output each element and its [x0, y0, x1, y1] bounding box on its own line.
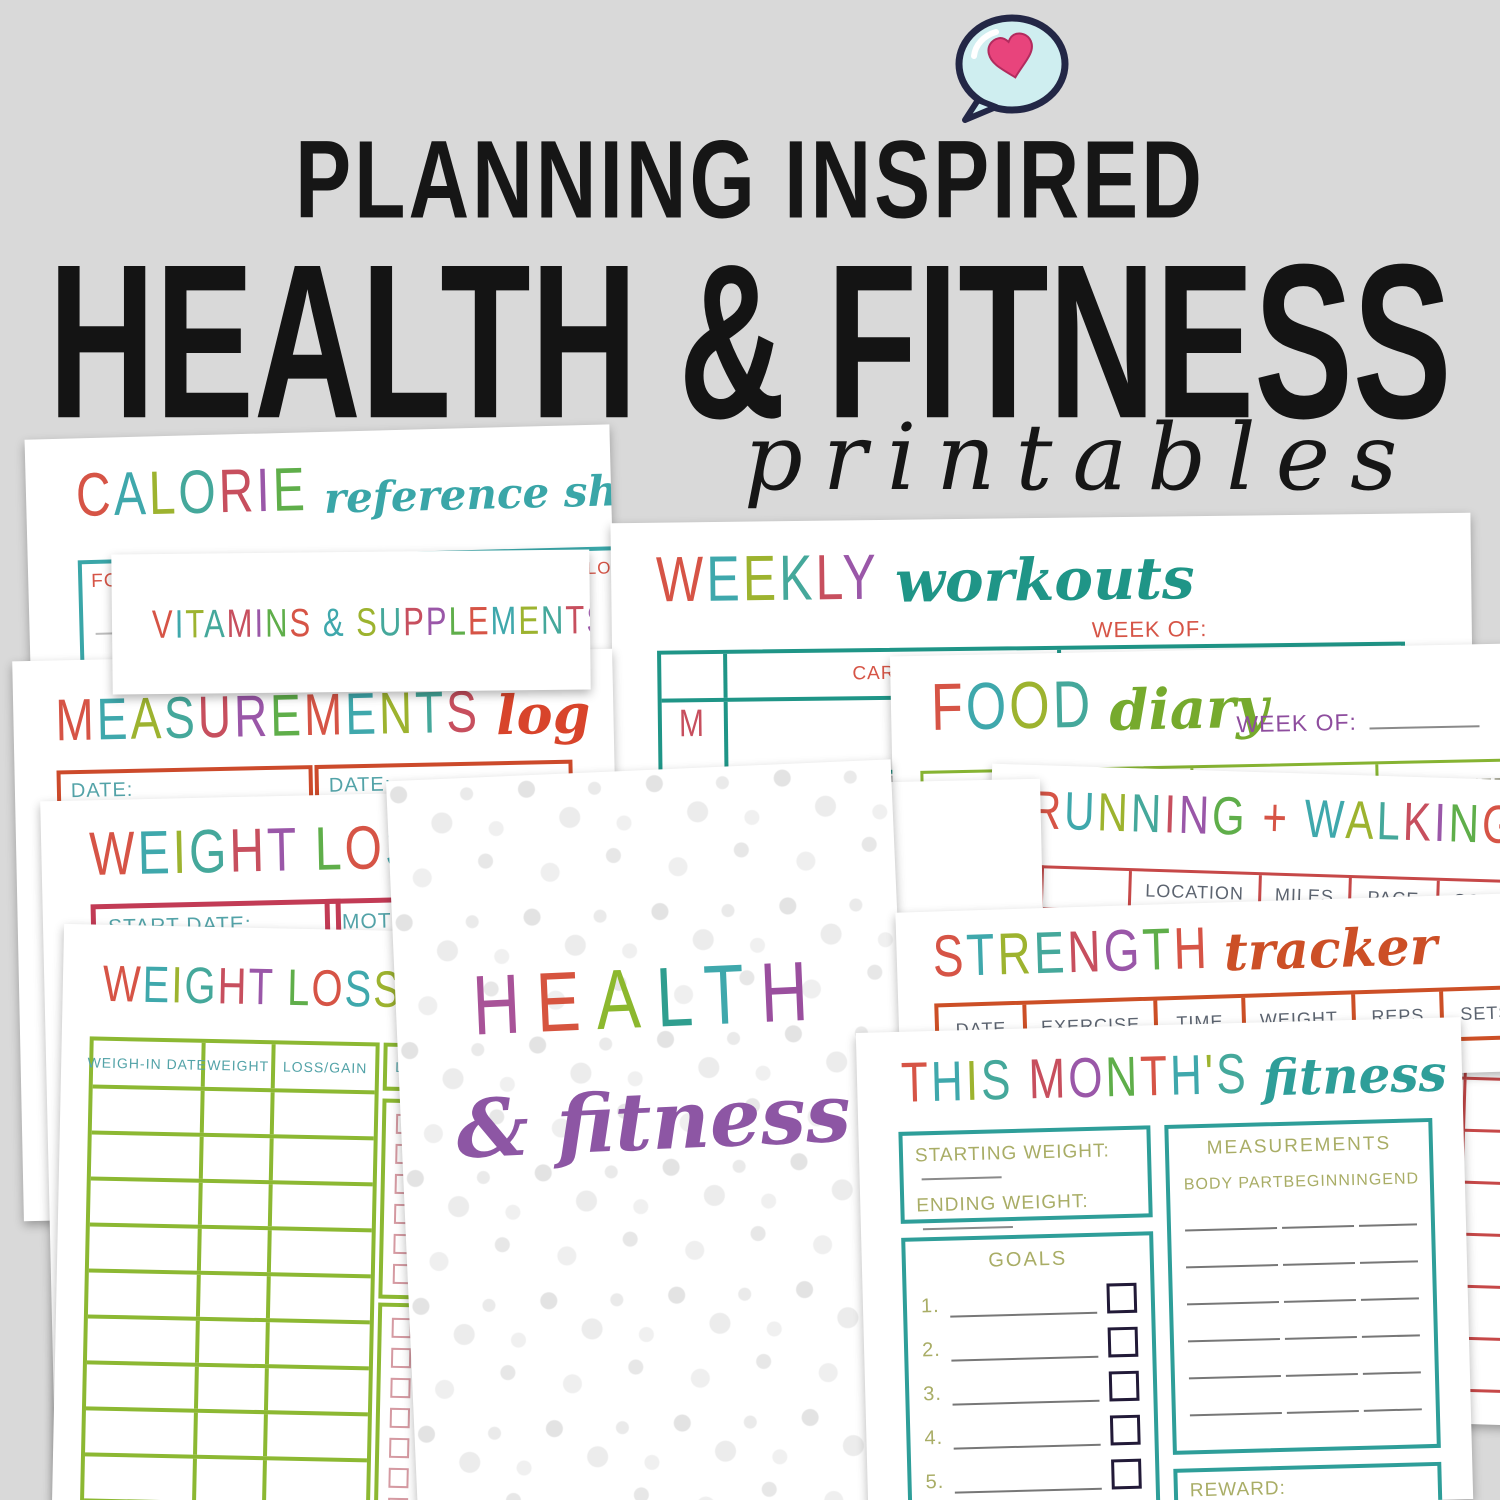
goal-item: 4. — [924, 1415, 1141, 1451]
column-header: LOSS/GAIN — [275, 1044, 376, 1090]
checkbox-icon — [391, 1348, 411, 1368]
table-cell — [267, 1414, 368, 1458]
cover-page: HEALTH & fitness — [386, 759, 923, 1500]
cover-title-line1: HEALTH — [470, 941, 825, 1054]
week-of-label: WEEK OF: — [1236, 709, 1357, 738]
write-in-line — [954, 1472, 1102, 1494]
starting-weight-label: STARTING WEIGHT: — [915, 1140, 1110, 1166]
table-row — [92, 1084, 375, 1136]
write-in-line — [953, 1428, 1101, 1450]
table-row — [91, 1130, 374, 1182]
table-row — [88, 1268, 371, 1320]
goal-number: 4. — [924, 1427, 943, 1450]
table-cell — [84, 1456, 197, 1500]
table-row — [84, 1452, 367, 1500]
write-in-line — [1369, 724, 1479, 729]
table-cell — [202, 1183, 273, 1226]
column-header-label: LOSS/GAIN — [283, 1058, 368, 1076]
write-in-line — [1286, 1372, 1358, 1377]
checkbox-icon — [390, 1378, 410, 1398]
table-cell — [92, 1088, 205, 1132]
table-cell — [204, 1091, 275, 1134]
table-cell — [87, 1318, 200, 1362]
write-in-line — [923, 1225, 1013, 1230]
checkbox-icon — [388, 1468, 408, 1488]
measurement-row — [1187, 1296, 1419, 1305]
measurement-row — [1190, 1407, 1422, 1416]
table-cell — [197, 1413, 268, 1456]
table-cell — [85, 1410, 198, 1454]
table-cell — [196, 1459, 267, 1500]
write-in-line — [949, 1296, 1097, 1318]
measurements-title-script: log — [495, 681, 591, 747]
column-header-label: WEIGHT — [207, 1057, 269, 1074]
weekly-title: WEEKLY — [656, 540, 880, 617]
write-in-line — [1282, 1224, 1354, 1229]
food-week-of: WEEK OF: — [1236, 706, 1479, 738]
goals-box: GOALS 1. 2. 3. 4. — [901, 1231, 1161, 1500]
column-header-label: WEIGH-IN DATE — [87, 1054, 207, 1072]
table-cell — [270, 1276, 371, 1320]
table-cell — [1463, 1132, 1500, 1189]
column-header-label: LOCATION — [1145, 881, 1244, 905]
measurement-rows — [1171, 1222, 1436, 1417]
write-in-line — [1186, 1263, 1278, 1268]
table-cell — [198, 1367, 269, 1410]
strength-title: STRENGTH — [932, 913, 1211, 991]
write-in-line — [1360, 1259, 1418, 1264]
table-cell — [90, 1180, 203, 1224]
table-cell — [271, 1230, 372, 1274]
vitamins-title: VITAMINS & SUPPLEMENTS — [152, 597, 591, 648]
write-in-line — [1363, 1370, 1421, 1375]
cover-title-line2: & fitness — [455, 1065, 853, 1176]
checkbox-icon — [1106, 1283, 1137, 1314]
write-in-line — [1287, 1409, 1359, 1414]
goal-number: 3. — [923, 1383, 942, 1406]
checkbox-icon — [1110, 1415, 1141, 1446]
column-header-label: END — [1382, 1170, 1419, 1189]
week-of-label: WEEK OF: — [1092, 616, 1208, 643]
table-cell — [199, 1321, 270, 1364]
write-in-line — [922, 1175, 1002, 1180]
table-cell — [274, 1092, 375, 1136]
table-row — [85, 1406, 368, 1458]
food-diary-title: FOOD — [930, 666, 1094, 746]
checkbox-icon — [390, 1408, 410, 1428]
checkbox-icon — [389, 1438, 409, 1458]
measurement-row — [1186, 1259, 1418, 1268]
write-in-line — [1359, 1222, 1417, 1227]
table-row — [89, 1222, 372, 1274]
checkbox-icon — [1111, 1459, 1142, 1490]
table-cell — [86, 1364, 199, 1408]
reward-box: REWARD: — [1173, 1462, 1442, 1500]
write-in-line — [1187, 1300, 1279, 1305]
write-in-line — [1285, 1335, 1357, 1340]
tracker-rows — [82, 1084, 375, 1500]
column-header: WEIGH-IN DATE — [93, 1040, 206, 1086]
write-in-line — [1185, 1226, 1277, 1231]
goal-item: 1. — [921, 1283, 1138, 1319]
month-title: THIS MONTH'S — [900, 1043, 1249, 1116]
monday-row-label: M — [662, 702, 729, 773]
tracker-title: WEIGHT LOSS — [102, 956, 402, 1020]
measurement-row — [1188, 1333, 1420, 1342]
table-row — [86, 1360, 369, 1412]
write-in-line — [951, 1340, 1099, 1362]
main-subtitle: printables — [744, 404, 1404, 511]
measurement-row — [1185, 1222, 1417, 1231]
day-m-label: M — [679, 703, 708, 747]
measurements-box-label: MEASUREMENTS — [1206, 1133, 1391, 1159]
weekly-title-script: workouts — [895, 544, 1195, 616]
table-cell — [89, 1226, 202, 1270]
calorie-title-script: reference sheet — [323, 464, 616, 523]
table-cell — [266, 1460, 367, 1500]
this-months-fitness-page: THIS MONTH'S fitness STARTING WEIGHT: EN… — [856, 1017, 1473, 1500]
table-cell — [203, 1137, 274, 1180]
write-in-line — [1362, 1333, 1420, 1338]
measurement-column-headers: BODY PART BEGINNING END — [1184, 1170, 1416, 1194]
goal-number: 5. — [925, 1471, 944, 1494]
weight-box: STARTING WEIGHT: ENDING WEIGHT: — [898, 1125, 1152, 1224]
table-cell — [201, 1229, 272, 1272]
goal-item: 3. — [923, 1371, 1140, 1407]
goal-item: 5. — [925, 1459, 1142, 1495]
table-row — [90, 1176, 373, 1228]
goal-item: 2. — [922, 1327, 1139, 1363]
goal-list: 1. 2. 3. 4. 5. — [907, 1282, 1160, 1500]
table-cell — [273, 1138, 374, 1182]
write-in-line — [1361, 1296, 1419, 1301]
goals-box-label: GOALS — [988, 1248, 1067, 1272]
write-in-line — [1190, 1411, 1282, 1416]
ending-weight-label: ENDING WEIGHT: — [916, 1191, 1089, 1217]
goal-number: 2. — [922, 1339, 941, 1362]
measurement-row — [1189, 1370, 1421, 1379]
table-cell — [91, 1134, 204, 1178]
checkbox-icon — [1108, 1327, 1139, 1358]
checkbox-icon — [1109, 1371, 1140, 1402]
table-cell — [272, 1184, 373, 1228]
tracker-table: WEIGH-IN DATE WEIGHT LOSS/GAIN — [78, 1036, 380, 1500]
column-header-label: SETS — [1460, 1002, 1500, 1025]
table-row — [87, 1314, 370, 1366]
write-in-line — [952, 1384, 1100, 1406]
goal-number: 1. — [921, 1295, 940, 1318]
write-in-line — [1188, 1337, 1280, 1342]
running-title: RUNNING + WALKING — [1030, 779, 1500, 856]
starting-weight-row: STARTING WEIGHT: — [915, 1140, 1136, 1186]
ending-weight-row: ENDING WEIGHT: — [916, 1190, 1137, 1236]
calorie-title: CALORIE — [75, 455, 309, 531]
write-in-line — [1189, 1374, 1281, 1379]
strength-title-script: tracker — [1223, 916, 1438, 984]
column-header-label: BODY PART — [1184, 1174, 1284, 1195]
speech-bubble-heart-icon — [948, 12, 1072, 124]
promo-image: PLANNING INSPIRED HEALTH & FITNESS print… — [0, 0, 1500, 1500]
column-header-label: BEGINNING — [1283, 1171, 1382, 1192]
reward-label: REWARD: — [1190, 1478, 1287, 1500]
table-cell — [88, 1272, 201, 1316]
write-in-line — [1283, 1261, 1355, 1266]
table-cell — [200, 1275, 271, 1318]
table-cell — [269, 1322, 370, 1366]
vitamins-log-page: VITAMINS & SUPPLEMENTS log — [111, 550, 590, 695]
table-cell — [268, 1368, 369, 1412]
month-title-script: fitness — [1262, 1044, 1447, 1108]
table-cell — [661, 654, 728, 699]
write-in-line — [1364, 1407, 1422, 1412]
table-cell — [1465, 1080, 1500, 1137]
column-header: WEIGHT — [205, 1043, 276, 1088]
write-in-line — [1284, 1298, 1356, 1303]
measurements-box: MEASUREMENTS BODY PART BEGINNING END — [1164, 1118, 1441, 1455]
table-cell — [1462, 1184, 1500, 1241]
